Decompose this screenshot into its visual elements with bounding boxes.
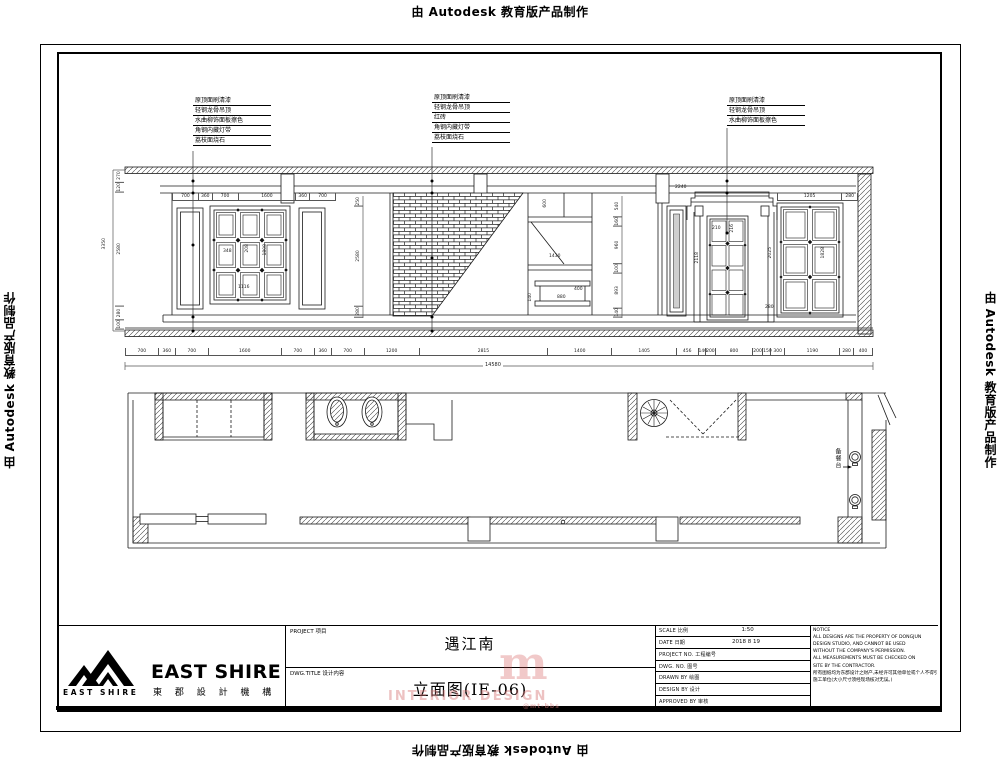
lattice-window [777, 203, 843, 317]
dim-chain-top-right: 1205280 [777, 193, 858, 200]
text-item: 角钢内藏灯带 [432, 123, 510, 133]
dim-counter: 1430 [549, 254, 560, 259]
field-value: 1:50 [688, 627, 807, 633]
titleblock-field-row: DWG. NO. 图号 [656, 661, 810, 673]
door [687, 192, 777, 322]
logo-chinese-name: 東 郡 設 計 機 構 [153, 685, 276, 698]
text-item: 1190 [784, 348, 839, 356]
text-item: 轻钢龙骨吊顶 [193, 106, 271, 116]
text-item: 540 [613, 196, 622, 217]
text-item: 原顶面刷清漆 [193, 96, 271, 106]
plan-view [128, 393, 896, 548]
dim-door: 2118 [695, 252, 700, 263]
text-item: 700 [281, 348, 314, 356]
titleblock-field-row: SCALE 比例1:50 [656, 625, 810, 637]
annotation-block-left: 原顶面刷清漆轻钢龙骨吊顶水曲柳饰面板擦色角钢内藏灯带荔枝面烧石 [193, 96, 271, 146]
text-item: 红砖 [432, 113, 510, 123]
dim-chain-bottom: 7003607001600700360700120028151400140545… [125, 348, 873, 355]
text-item: ALL DESIGNS ARE THE PROPERTY OF DONGJUN [813, 634, 937, 641]
titleblock-divider [285, 667, 655, 668]
serving-counter-label: 备餐台 [833, 448, 842, 469]
field-label: DWG. NO. 图号 [659, 663, 698, 670]
text-item: 轻钢龙骨吊顶 [727, 106, 805, 116]
plan-sink [850, 452, 861, 509]
field-value: 2018 8 19 [685, 639, 807, 645]
text-item: 施工单位(大小尺寸须经现场核对无误。) [813, 677, 937, 684]
dim-total-height: 3350 [102, 238, 107, 249]
spiral-ornament [641, 400, 668, 427]
dim-counter: 400 [574, 287, 583, 292]
text-item: 2580 [354, 207, 363, 307]
dim-chain-left: 2701202580280100 [115, 170, 124, 330]
text-item: 300 [770, 348, 785, 356]
field-label: DESIGN BY 设计 [659, 686, 700, 693]
field-label: APPROVED BY 审核 [659, 698, 708, 705]
text-item: 280 [839, 348, 853, 356]
text-item: 160 [613, 217, 622, 227]
titleblock-field-row: PROJECT NO. 工程编号 [656, 649, 810, 661]
field-label: PROJECT NO. 工程编号 [659, 651, 716, 658]
text-item: 456 [676, 348, 698, 356]
lattice-ornaments [212, 208, 288, 302]
dim-door: 2240 [675, 185, 686, 190]
text-item: 280 [841, 193, 858, 201]
dim-grid: 208 [245, 244, 250, 253]
basin [327, 397, 347, 427]
dim-window: 280 [765, 305, 774, 310]
project-name: 遇江南 [285, 633, 655, 654]
dim-counter: 600 [543, 199, 548, 208]
titleblock-field-row: DESIGN BY 设计 [656, 684, 810, 696]
text-item: 2580 [115, 192, 124, 307]
titleblock-field-row: APPROVED BY 审核 [656, 696, 810, 707]
text-item: 360 [158, 348, 175, 356]
text-item: 360 [295, 193, 309, 201]
text-item: 140 [698, 348, 705, 356]
dim-grid: 348 [223, 249, 232, 254]
text-item: NOTICE [813, 627, 937, 634]
text-item: 1400 [547, 348, 611, 356]
notice-block: NOTICEALL DESIGNS ARE THE PROPERTY OF DO… [813, 627, 937, 684]
text-item: 700 [175, 348, 208, 356]
text-item: 700 [331, 348, 364, 356]
text-item: 270 [115, 170, 124, 183]
text-item: 893 [613, 274, 622, 309]
text-item: 280 [115, 307, 124, 320]
field-label: SCALE 比例 [659, 627, 688, 634]
text-item: 1205 [777, 193, 841, 201]
text-item: 角钢内藏灯带 [193, 126, 271, 136]
text-item: 150 [762, 348, 770, 356]
text-item: 原顶面刷清漆 [727, 96, 805, 106]
text-item: 700 [309, 193, 336, 201]
text-item: 1600 [238, 193, 296, 201]
drawing-title: 立面图(IE-06) [285, 676, 655, 700]
text-item: DESIGN STUDIO, AND CANNOT BE USED [813, 641, 937, 648]
east-shire-logo-icon [68, 650, 134, 686]
text-item: 960 [613, 227, 622, 264]
brick-wall [393, 193, 523, 316]
text-item: 轻钢龙骨吊顶 [432, 103, 510, 113]
text-item: 250 [354, 196, 363, 207]
text-item: 280 [354, 306, 363, 318]
dim-grid: 1808 [263, 244, 268, 255]
drawing-sheet: 由 Autodesk 教育版产品制作 由 Autodesk 教育版产品制作 由 … [0, 0, 1000, 762]
field-label: DATE 日期 [659, 639, 685, 646]
text-item: 200 [705, 348, 715, 356]
dim-total-width: 14580 [483, 362, 503, 368]
logo-wordmark: EAST SHIRE [151, 661, 281, 683]
text-item: 200 [752, 348, 762, 356]
titleblock-fields: SCALE 比例1:50DATE 日期2018 8 19PROJECT NO. … [656, 625, 810, 707]
text-item: WITHOUT THE COMPANY'S PERMISSION. [813, 648, 937, 655]
text-item: 所有图纸均为东郡设计之财产,未经许可其他单位或个人不得引用本图内容。 [813, 670, 937, 677]
text-item: 1200 [364, 348, 419, 356]
dim-chain-mid: 2502580280 [354, 196, 363, 318]
text-item: 360 [198, 193, 212, 201]
door-swing [666, 400, 740, 437]
text-item: 2815 [419, 348, 547, 356]
text-item: 100 [613, 264, 622, 274]
text-item: 700 [172, 193, 198, 201]
annotation-block-middle: 原顶面刷清漆轻钢龙骨吊顶红砖角钢内藏灯带荔枝面烧石 [432, 93, 510, 143]
dim-chain-top-left: 7003607001600360700 [172, 193, 336, 200]
text-item: 水曲柳饰面板擦色 [727, 116, 805, 126]
field-label: DRAWN BY 绘图 [659, 674, 700, 681]
text-item: 700 [212, 193, 238, 201]
basin [362, 397, 382, 427]
text-item: 1600 [208, 348, 281, 356]
text-item: 360 [314, 348, 331, 356]
titleblock-field-row: DRAWN BY 绘图 [656, 672, 810, 684]
text-item: 原顶面刷清漆 [432, 93, 510, 103]
dim-door: 210 [712, 226, 721, 231]
text-item: 水曲柳饰面板擦色 [193, 116, 271, 126]
titleblock-divider [810, 625, 811, 707]
dim-counter: 140 [528, 293, 533, 302]
text-item: 100 [115, 320, 124, 330]
text-item: 400 [853, 348, 873, 356]
text-item: 700 [125, 348, 158, 356]
text-item: 荔枝面烧石 [432, 133, 510, 143]
text-item: ALL MEASUREMENTS MUST BE CHECKED ON [813, 655, 937, 662]
dim-counter: 880 [557, 295, 566, 300]
dim-door: 216 [730, 224, 735, 233]
text-item: 荔枝面烧石 [193, 136, 271, 146]
text-item: 800 [715, 348, 752, 356]
dim-grid: 1116 [238, 285, 249, 290]
dim-chain-bar: 540160960100893140 [613, 196, 622, 318]
annotation-block-right: 原顶面刷清漆轻钢龙骨吊顶水曲柳饰面板擦色 [727, 96, 805, 126]
text-item: SITE BY THE CONTRACTOR. [813, 663, 937, 670]
titleblock-field-row: DATE 日期2018 8 19 [656, 637, 810, 649]
text-item: 140 [613, 308, 622, 318]
logo-subtext: EAST SHIRE [63, 688, 138, 697]
text-item: 1405 [611, 348, 676, 356]
dim-window: 1828 [821, 247, 826, 258]
dim-window: 2025 [768, 247, 773, 258]
